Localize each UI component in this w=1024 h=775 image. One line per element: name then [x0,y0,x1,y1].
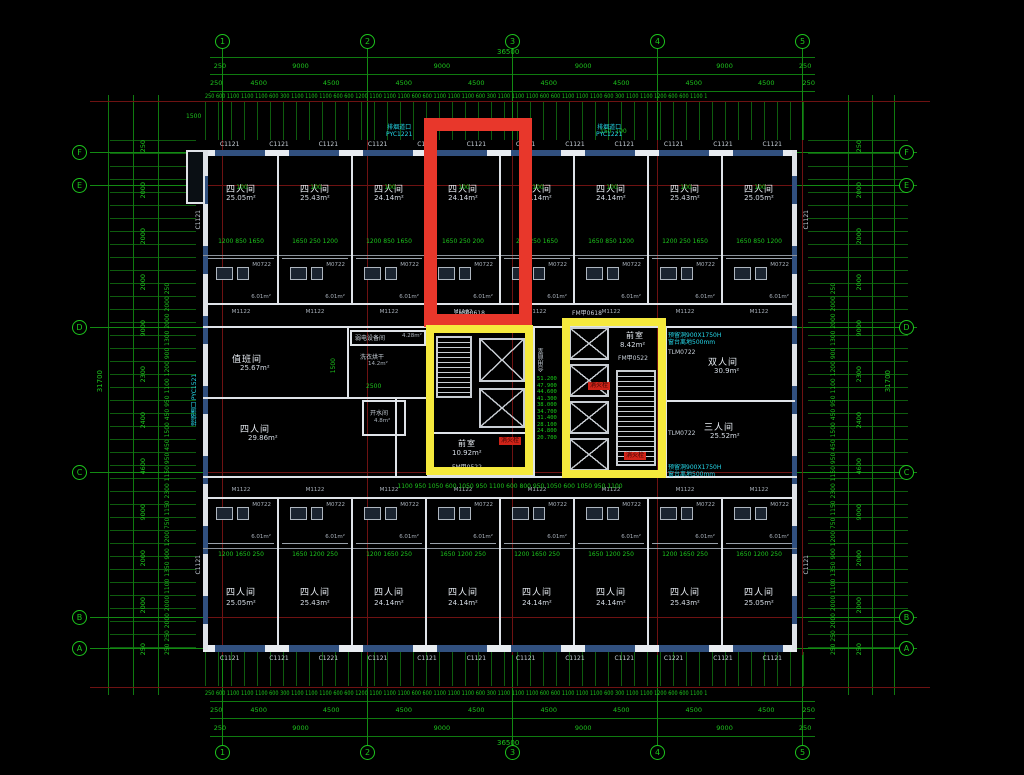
bath-door-tag: M0722 [622,262,641,268]
bathroom: 6.01m²M0722 [652,258,718,303]
axis-line-red-bottom [90,687,930,688]
partition-wall [203,397,427,399]
window-tag-right: C1121 [803,210,810,229]
grid-bubble-row-E-left: E [72,178,87,193]
room-area: 24.14m² [501,599,573,607]
bathroom: 6.01m²M0722 [578,499,644,544]
dim-row-9000-bottom: 2509000900090009000250 [210,724,815,732]
room-name: 四人间 [205,585,277,598]
bath-door-tag: M0722 [252,262,271,268]
dim-fine-chain-right: 250 250 2000 2000 1100 1350 900 1200 750… [830,140,837,655]
entry-door-tag: M1122 [232,309,251,315]
room-area: 14.2m² [368,361,388,367]
grid-bubble-col-1-top: 1 [215,34,230,49]
grid-bubble-col-5-top: 5 [795,34,810,49]
grid-bubble-row-C-right: C [899,465,914,480]
partition-wall [665,400,795,402]
room: 6.01m²M07221200 1650 250四人间24.14m²M1122 [501,499,575,645]
grid-bubble-row-A-right: A [899,641,914,656]
grid-bubble-col-2-top: 2 [360,34,375,49]
room-dims: 1650 1200 250 [575,551,647,558]
extension-ticks-left [110,140,196,655]
room-area: 25.43m² [279,194,351,202]
grid-bubble-row-F-left: F [72,145,87,160]
grid-bubble-row-E-right: E [899,178,914,193]
room-name: 弱电设备间 [355,333,385,342]
highlight-yellow-box-left-core [426,325,533,475]
room-name: 四人间 [501,585,573,598]
dim-col-left: 2502000200020009000230024004600900020002… [136,140,150,655]
grid-bubble-row-A-left: A [72,641,87,656]
room-area: 29.86m² [248,434,278,442]
dim-overall-height-left: 31700 [96,370,104,392]
corridor-dim-chain: 1100 950 1050 600 1050 950 1100 600 800 … [250,483,770,490]
window-tag-left: C1121 [195,210,202,229]
bath-area: 6.01m² [399,534,419,540]
room-area: 24.14m² [427,599,499,607]
room: 四人间25.43m²1200 250 16506.01m²M0722M1122 [649,156,723,303]
bathroom: 6.01m²M0722 [208,499,274,544]
room-dims: 1200 1650 250 [205,551,277,558]
balcony-top-left [186,150,205,204]
room-dims: 1200 1650 250 [501,551,573,558]
room-area: 4.8m² [374,418,390,424]
room-area: 25.43m² [649,194,721,202]
room: 6.01m²M07221200 1650 250四人间25.05m²M1122 [205,499,279,645]
dim-1500: 1500 [330,358,337,373]
dim-overall-height-right: 31700 [884,370,892,392]
bath-door-tag: M0722 [326,262,345,268]
room: 四人间25.43m²1650 250 12006.01m²M0722M1122 [279,156,353,303]
room: 6.01m²M07221200 1650 250四人间24.14m²M1122 [353,499,427,645]
grid-bubble-col-3-bottom: 3 [505,745,520,760]
entry-door-tag: M1122 [380,309,399,315]
grid-bubble-col-2-bottom: 2 [360,745,375,760]
room-dims: 1650 1200 250 [279,551,351,558]
dim-fine-chain-left: 250 250 2000 2000 1100 1350 900 1200 750… [164,140,171,655]
entry-door-tag: M1122 [232,487,251,493]
bath-door-tag: M0722 [252,502,271,508]
bath-door-tag: M0722 [326,502,345,508]
room-dims: 1650 250 1200 [279,238,351,245]
room-area: 25.43m² [279,599,351,607]
room: 四人间25.05m²1200 850 16506.01m²M0722M1122 [205,156,279,303]
room: 6.01m²M07221200 1650 250四人间25.43m²M1122 [649,499,723,645]
dim-fine-chain-top: 250 600 1100 1100 1100 600 300 1100 1100… [205,93,707,100]
grid-bubble-row-F-right: F [899,145,914,160]
bath-door-tag: M0722 [696,502,715,508]
room-name: 四人间 [649,585,721,598]
room-name: 洗衣烘干 [360,352,384,361]
bath-door-tag: M0722 [622,502,641,508]
room-band-bottom: 6.01m²M07221200 1650 250四人间25.05m²M1122 … [205,499,795,645]
grid-bubble-row-D-right: D [899,320,914,335]
window-tag-row-bottom: C1121C1121C1221C1121C1121C1121C1121C1121… [205,655,797,662]
dim-corner-1500: 1500 [186,113,201,120]
fire-door-tag: FM甲0618 [572,308,602,317]
cad-floorplan-canvas: 36500 2509000900090009000250 25045004500… [0,0,1024,775]
room-area: 24.14m² [353,599,425,607]
room: 6.01m²M07221650 1200 250四人间25.05m²M1122 [723,499,795,645]
room-area: 25.67m² [240,364,270,372]
room-dims: 1200 850 1650 [205,238,277,245]
room-area: 25.52m² [710,432,740,440]
bath-area: 6.01m² [769,294,789,300]
room: 四人间25.05m²1650 850 12006.01m²M0722M1122 [723,156,795,303]
room-dims: 1200 850 1650 [353,238,425,245]
grid-bubble-row-D-left: D [72,320,87,335]
bathroom: 6.01m²M0722 [578,258,644,303]
elevation-table: 51.20047.90044.60041.30038.00034.70031.4… [537,376,557,441]
exterior-wall-bottom [203,645,797,652]
reserved-hole-note: 预留洞900X1750H窗台离地500mm [668,332,721,346]
bath-door-tag: M0722 [400,502,419,508]
smoke-vent-note-left: 排烟道口 PYC1521 [191,355,198,445]
entry-door-tag: M1122 [602,309,621,315]
bathroom: 6.01m²M0722 [726,258,792,303]
door-tag: TLM0722 [668,349,695,356]
entry-door-tag: M1122 [750,309,769,315]
room-name: 四人间 [575,585,647,598]
shared-lobby-label: 合用前室 [537,326,546,372]
dim-col-right: 2502000200020009000230024004600900020002… [852,140,866,655]
bath-door-tag: M0722 [474,502,493,508]
room-name: 四人间 [723,585,795,598]
partition-wall [347,328,349,397]
grid-bubble-col-5-bottom: 5 [795,745,810,760]
bath-area: 6.01m² [399,294,419,300]
room-area: 24.14m² [353,194,425,202]
room-dims: 1650 850 1200 [575,238,647,245]
bath-area: 6.01m² [547,294,567,300]
room: 四人间24.14m²1200 850 16506.01m²M0722M1122 [353,156,427,303]
bath-door-tag: M0722 [400,262,419,268]
room-area: 25.05m² [723,599,795,607]
room-area: 25.05m² [205,194,277,202]
grid-bubble-row-C-left: C [72,465,87,480]
reserved-hole-note: 预留洞900X1750H窗台离地500mm [668,464,721,478]
bath-area: 6.01m² [473,534,493,540]
window-tag-right: C1121 [803,555,810,574]
room-area: 30.9m² [714,367,739,375]
bathroom: 6.01m²M0722 [726,499,792,544]
room-dims: 1650 1200 250 [723,551,795,558]
bathroom: 6.01m²M0722 [356,258,422,303]
highlight-yellow-box-right-core [562,318,666,478]
bath-door-tag: M0722 [548,262,567,268]
axis-line-red-top [90,101,930,102]
smoke-vent-note: 排烟道口PYC1221 [386,124,412,138]
bathroom: 6.01m²M0722 [282,499,348,544]
bath-area: 6.01m² [251,534,271,540]
room: 四人间24.14m²1650 850 12006.01m²M0722M1122 [575,156,649,303]
room-dims: 1650 1200 250 [427,551,499,558]
highlight-red-box [424,118,532,327]
bathroom: 6.01m²M0722 [652,499,718,544]
grid-bubble-col-4-bottom: 4 [650,745,665,760]
bath-area: 6.01m² [695,294,715,300]
bath-area: 6.01m² [547,534,567,540]
room: 6.01m²M07221650 1200 250四人间24.14m²M1122 [575,499,649,645]
grid-bubble-row-B-right: B [899,610,914,625]
room-area: 25.05m² [723,194,795,202]
bathroom: 6.01m²M0722 [504,499,570,544]
room-area: 25.05m² [205,599,277,607]
room-area: 25.43m² [649,599,721,607]
bath-door-tag: M0722 [696,262,715,268]
bath-door-tag: M0722 [548,502,567,508]
partition-wall [533,328,535,476]
room-area: 24.14m² [575,599,647,607]
room-area: 4.28m² [402,333,422,339]
room-name: 开水间 [370,408,388,417]
grid-bubble-col-1-bottom: 1 [215,745,230,760]
bathroom: 6.01m²M0722 [208,258,274,303]
grid-bubble-col-3-top: 3 [505,34,520,49]
room-dims: 1200 1650 250 [353,551,425,558]
room: 6.01m²M07221650 1200 250四人间24.14m²M1122 [427,499,501,645]
room-name: 四人间 [427,585,499,598]
grid-bubble-row-B-left: B [72,610,87,625]
bath-area: 6.01m² [621,294,641,300]
dim-row-4500-top: 25045004500450045004500450045004500250 [210,79,815,87]
bath-door-tag: M0722 [770,262,789,268]
room-area: 24.14m² [575,194,647,202]
room: 6.01m²M07221650 1200 250四人间25.43m²M1122 [279,499,353,645]
smoke-vent-note: 排烟道口PYC1221 [596,124,622,138]
dim-fine-chain-bottom: 250 600 1100 1100 1100 600 300 1100 1100… [205,690,707,697]
room-name: 四人间 [279,585,351,598]
room-dims: 1200 250 1650 [649,238,721,245]
dim-row-9000-top: 2509000900090009000250 [210,62,815,70]
room-dims: 1200 1650 250 [649,551,721,558]
bath-area: 6.01m² [695,534,715,540]
dim-2500: 2500 [366,383,381,390]
dim-row-4500-bottom: 25045004500450045004500450045004500250 [210,706,815,714]
bathroom: 6.01m²M0722 [356,499,422,544]
bathroom: 6.01m²M0722 [430,499,496,544]
door-tag: TLM0722 [668,430,695,437]
entry-door-tag: M1122 [676,309,695,315]
bathroom: 6.01m²M0722 [282,258,348,303]
dim-overall-width-top: 36500 [497,48,519,56]
bath-area: 6.01m² [769,534,789,540]
bath-area: 6.01m² [325,534,345,540]
entry-door-tag: M1122 [306,309,325,315]
bath-area: 6.01m² [621,534,641,540]
bath-area: 6.01m² [325,294,345,300]
bath-area: 6.01m² [251,294,271,300]
grid-bubble-col-4-top: 4 [650,34,665,49]
room-name: 四人间 [353,585,425,598]
room-dims: 1650 850 1200 [723,238,795,245]
window-tag-left: C1121 [195,555,202,574]
bath-door-tag: M0722 [770,502,789,508]
